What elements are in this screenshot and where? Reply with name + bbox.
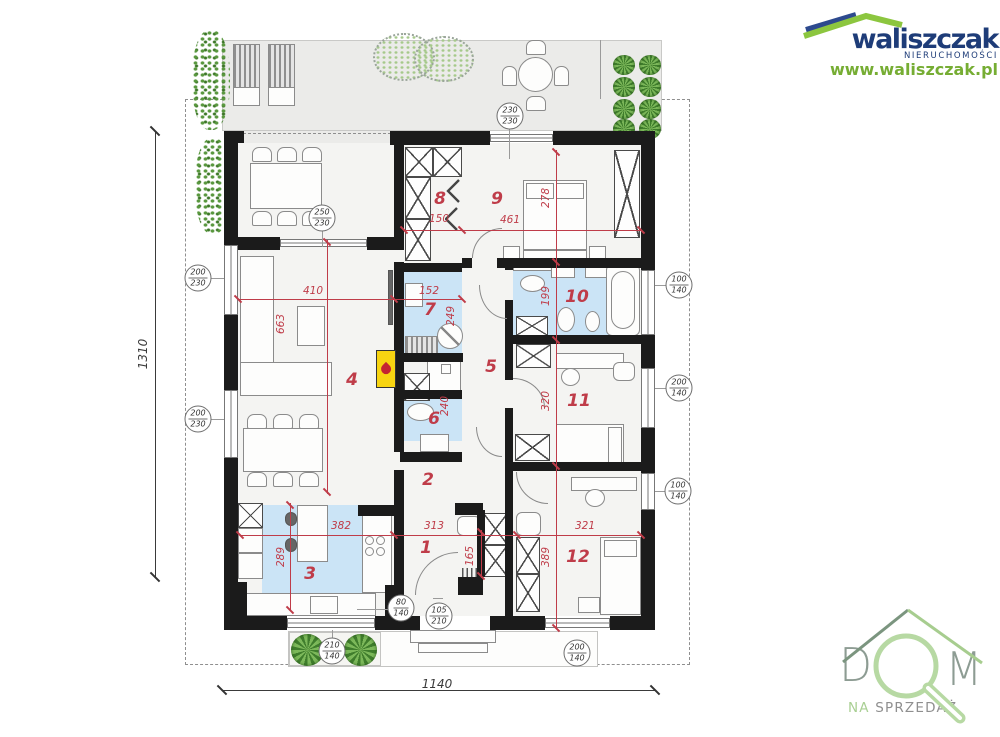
desk-chair: [585, 489, 605, 507]
desk: [571, 477, 637, 491]
interior-wall: [505, 462, 550, 471]
garden-bush: [291, 634, 324, 666]
ivy-plant: [192, 30, 230, 130]
terrace-chair: [277, 147, 297, 162]
leader-line: [332, 630, 333, 642]
sofa: [240, 362, 332, 396]
exterior-wall: [224, 315, 238, 390]
pillow: [608, 427, 622, 465]
leader-line: [433, 598, 443, 599]
agency-website: www.waliszczak.pl: [830, 60, 998, 79]
dining-chair: [273, 414, 293, 429]
leader-line: [655, 285, 667, 286]
garden-bush: [639, 55, 661, 75]
dimension-line: [238, 299, 462, 300]
hedge-shrub: [414, 36, 474, 82]
tv-cabinet: [388, 270, 393, 325]
dining-chair: [299, 414, 319, 429]
armchair: [613, 362, 635, 381]
entry-step: [418, 643, 488, 653]
window: [224, 245, 238, 315]
wardrobe: [515, 434, 550, 461]
pillow: [526, 183, 554, 199]
leader-line: [509, 129, 510, 159]
kitchen-sink: [310, 596, 338, 614]
window: [641, 270, 655, 335]
wardrobe: [433, 147, 462, 177]
leader-line: [655, 388, 667, 389]
terrace-chair: [252, 147, 272, 162]
terrace-chair: [252, 211, 272, 226]
sun-lounger-foot: [233, 87, 260, 106]
interior-wall: [400, 452, 462, 462]
pillow: [604, 540, 637, 557]
leader-line: [357, 609, 389, 610]
terrace-chair: [302, 211, 322, 226]
dining-table: [243, 428, 323, 472]
interior-wall: [394, 145, 404, 245]
wardrobe: [614, 150, 640, 238]
interior-wall: [548, 462, 655, 471]
exterior-wall: [390, 131, 490, 145]
terrace-table: [250, 163, 322, 209]
dom-na-sprzedaz-watermark: D M NA SPRZEDAŻ: [830, 600, 1000, 732]
interior-wall: [398, 353, 463, 362]
cooktop-burner: [376, 536, 385, 545]
utility-sink: [405, 283, 423, 307]
kitchen-cabinet: [238, 553, 263, 579]
dimension-line: [290, 503, 291, 611]
interior-wall: [385, 585, 404, 616]
kitchen-cabinet: [238, 528, 263, 553]
cooktop-burner: [365, 547, 374, 556]
interior-wall: [505, 408, 513, 462]
patio-chair: [502, 66, 517, 86]
garden-bush: [613, 99, 635, 119]
interior-wall: [505, 335, 655, 344]
patio-edge-line: [600, 40, 601, 99]
exterior-wall: [224, 616, 287, 630]
dining-chair: [299, 472, 319, 487]
terrace-chair: [277, 211, 297, 226]
pillow: [556, 183, 584, 199]
exterior-wall: [224, 131, 238, 245]
wardrobe: [516, 574, 540, 612]
washing-machine: [405, 336, 438, 354]
dryer: [437, 323, 463, 349]
bar-stool: [285, 512, 297, 526]
dimension-label: 1140: [422, 677, 453, 691]
nightstand: [578, 597, 600, 613]
flame-icon: [379, 362, 393, 376]
water-heater-valve: [441, 364, 451, 374]
garden-bush: [639, 77, 661, 97]
toilet: [407, 403, 434, 421]
floor-plan-page: 1234567891011124101521504613823133216632…: [0, 0, 1000, 737]
dresser: [516, 512, 541, 536]
bathroom-cabinet: [516, 316, 548, 336]
exterior-wall: [641, 510, 655, 630]
garden-bush: [613, 55, 635, 75]
exterior-wall: [610, 616, 655, 630]
garden-bush: [344, 634, 377, 666]
terrace-glass-door: [280, 239, 367, 247]
overall-width-dimension-line: [222, 690, 655, 691]
house-magnifier-icon: [830, 600, 1000, 732]
toilet: [557, 307, 575, 332]
wardrobe: [405, 147, 433, 177]
roof-overhang-line: [243, 133, 391, 135]
interior-wall: [397, 263, 462, 272]
fireplace-icon: [376, 350, 396, 388]
interior-wall: [462, 258, 472, 268]
exterior-wall: [238, 582, 247, 616]
wardrobe: [516, 344, 551, 368]
terrace-chair: [302, 147, 322, 162]
washbasin: [520, 275, 545, 292]
dimension-line: [481, 530, 482, 578]
exterior-wall: [641, 131, 655, 270]
bathtub-basin: [611, 271, 635, 329]
dimension-line: [404, 230, 641, 231]
exterior-wall: [553, 131, 655, 145]
garden-bush: [613, 77, 635, 97]
washbasin-cabinet: [420, 434, 449, 452]
dining-chair: [247, 472, 267, 487]
hanging-rail-icon: [445, 176, 463, 234]
dimension-line: [556, 150, 557, 628]
fridge: [238, 503, 263, 528]
kitchen-island: [297, 505, 328, 562]
overall-height-dimension-line: [155, 131, 156, 577]
garden-bush: [639, 99, 661, 119]
dining-chair: [247, 414, 267, 429]
window: [641, 473, 655, 510]
exterior-wall: [490, 616, 545, 630]
dimension-line: [240, 535, 641, 536]
patio-chair: [554, 66, 569, 86]
patio-table: [518, 57, 553, 92]
interior-wall: [497, 258, 655, 268]
leader-line: [322, 231, 323, 247]
leader-line: [211, 278, 224, 279]
dining-chair: [273, 472, 293, 487]
wardrobe: [405, 219, 431, 261]
bar-stool: [285, 538, 297, 552]
exterior-wall: [224, 131, 244, 143]
wardrobe: [405, 177, 431, 219]
interior-wall: [358, 505, 404, 516]
dimension-line: [327, 240, 328, 494]
entry-step: [410, 630, 496, 643]
patio-chair: [526, 40, 546, 55]
leader-line: [577, 640, 578, 650]
interior-wall: [505, 462, 513, 616]
sofa: [240, 256, 274, 368]
agency-logo: waliszczak NIERUCHOMOŚCI www.waliszczak.…: [795, 8, 1000, 74]
sun-lounger-foot: [268, 87, 295, 106]
dimension-label: 1310: [136, 339, 150, 370]
logo-roof-icon: [795, 8, 1000, 48]
exterior-wall: [375, 616, 420, 630]
coffee-table: [297, 306, 325, 346]
bidet: [585, 311, 600, 332]
wardrobe: [516, 537, 540, 574]
cooktop-burner: [376, 547, 385, 556]
leader-line: [655, 491, 667, 492]
window: [641, 368, 655, 428]
garden-glass-door: [490, 134, 553, 142]
window: [545, 618, 610, 628]
patio-chair: [526, 96, 546, 111]
interior-wall: [458, 577, 483, 595]
leader-line: [211, 419, 224, 420]
exterior-wall: [224, 458, 238, 630]
window: [224, 390, 238, 458]
desk-chair: [561, 368, 580, 386]
interior-wall: [403, 390, 462, 399]
window: [287, 618, 375, 628]
cooktop-burner: [365, 536, 374, 545]
